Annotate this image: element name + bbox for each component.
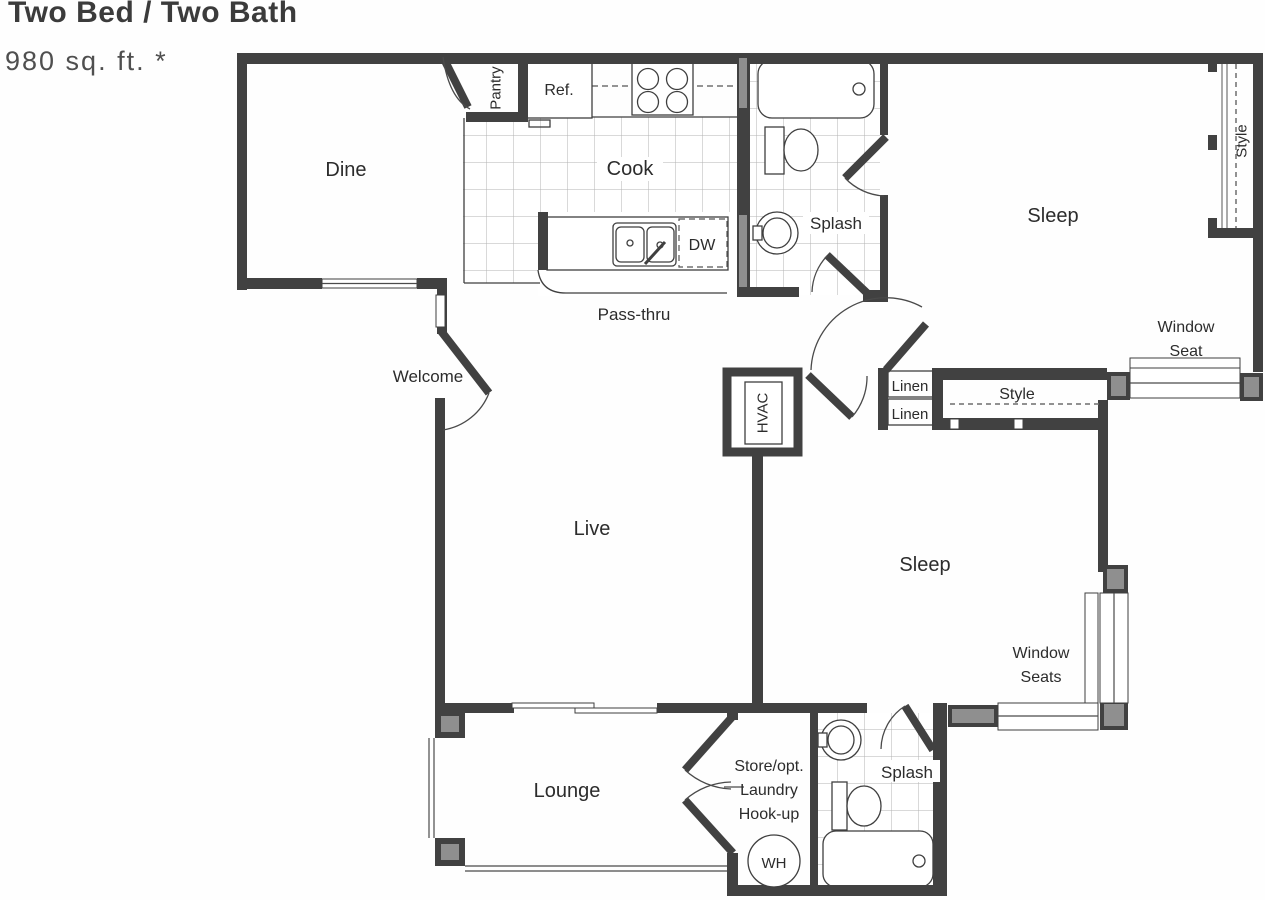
post-fill <box>1107 569 1124 589</box>
toilet-tank <box>765 127 784 174</box>
window-seat-upper-label-l1: Window <box>1158 319 1215 336</box>
wall-pantry-east <box>518 53 528 122</box>
bathtub <box>758 60 874 118</box>
wall-store-west-lower <box>727 853 738 891</box>
wall-dine-south-a <box>237 278 322 289</box>
wall-linen-west <box>878 368 888 430</box>
entry-label-welcome: Welcome <box>393 367 464 386</box>
wall-bath-lower-west <box>810 703 818 896</box>
laundry-label-l1: Store/opt. <box>734 758 803 775</box>
wall-live-west <box>435 398 445 710</box>
window-seats-lower-label-l1: Window <box>1013 645 1070 662</box>
wall-closet-bedroom-seg <box>1208 53 1217 72</box>
sleep-upper-door-leaf <box>886 324 926 370</box>
hvac-label: HVAC <box>755 393 772 434</box>
wall-bath-lower-north <box>818 703 867 713</box>
closet-hall-label: Style <box>999 386 1035 403</box>
entry-window <box>436 295 445 327</box>
sleep-lower-door-arc <box>852 376 867 417</box>
wall-bath-sleep-b <box>880 195 888 302</box>
room-label-dine: Dine <box>325 159 366 181</box>
wall-live-sleep-divider <box>752 455 763 707</box>
room-label-live: Live <box>574 518 611 540</box>
lounge-door-leaf-lower <box>685 800 733 853</box>
post-fill <box>441 716 459 732</box>
sink-tap-icon <box>753 226 762 240</box>
sleep-lower-door-leaf <box>808 375 852 417</box>
room-label-sleep-upper: Sleep <box>1027 205 1078 227</box>
linen-lower-label: Linen <box>892 406 929 423</box>
room-label-sleep-lower: Sleep <box>899 554 950 576</box>
plumbing-wall-fill <box>739 215 747 287</box>
toilet-bowl <box>784 129 818 171</box>
sleep-upper-door-arc <box>811 298 922 370</box>
pantry-label: Pantry <box>488 66 505 110</box>
patio-slider-a <box>512 703 594 708</box>
window-seat-upper-label-l2: Seat <box>1170 343 1203 360</box>
wall-sleep-lower-south <box>763 703 818 713</box>
dishwasher-label: DW <box>689 237 717 254</box>
window-block-fill <box>952 709 994 723</box>
room-label-lounge: Lounge <box>534 780 601 802</box>
wall-dine-west <box>237 53 247 290</box>
lounge-door-leaf-upper <box>685 716 733 770</box>
post-fill <box>1111 376 1126 396</box>
sink-tap-icon <box>818 733 827 747</box>
wall-sleep-lower-east <box>1098 400 1108 572</box>
laundry-label-l3: Hook-up <box>739 806 800 823</box>
closet-bedroom-label: Style <box>1234 124 1251 157</box>
fridge-label: Ref. <box>544 82 573 99</box>
patio-slider-b <box>575 708 657 713</box>
room-label-splash-lower: Splash <box>881 763 933 782</box>
wall-closet-bedroom-seg <box>1208 135 1217 150</box>
wall-closet-bedroom-south <box>1208 228 1263 238</box>
laundry-label-l2: Laundry <box>740 782 798 799</box>
door-pivot-mark <box>1014 419 1023 429</box>
wall-bath-lower-east <box>933 703 947 896</box>
entry-door-arc <box>443 393 489 430</box>
wall-closet-hall-north <box>932 368 1107 380</box>
toilet-bowl <box>847 786 881 826</box>
room-label-cook: Cook <box>607 158 655 180</box>
window-seats-lower-label-l2: Seats <box>1021 669 1062 686</box>
plumbing-wall-fill <box>739 58 747 108</box>
toilet-tank <box>832 782 847 830</box>
post-fill <box>441 844 459 860</box>
wall-bath-upper-south <box>737 287 799 297</box>
wall-lounge-north-b <box>657 703 763 713</box>
wall-peninsula-stub <box>538 212 548 270</box>
wall-bath-sleep-a <box>880 53 888 135</box>
door-pivot-mark <box>950 419 959 429</box>
floorplan-page: Two Bed / Two Bath 980 sq. ft. * <box>0 0 1265 900</box>
post-fill <box>1244 377 1259 397</box>
pass-thru-label: Pass-thru <box>598 305 671 324</box>
post-fill <box>1104 704 1124 726</box>
floorplan-drawing: Dine Cook Live Sleep Sleep Lounge Splash… <box>0 0 1265 900</box>
bathtub <box>823 831 933 887</box>
window-seat-lower-bench <box>1085 593 1098 703</box>
wall-bottom <box>727 885 947 896</box>
wall-east <box>1253 53 1263 372</box>
linen-upper-label: Linen <box>892 378 929 395</box>
water-heater-label: WH <box>762 855 787 872</box>
pantry-door-leaf <box>443 57 468 107</box>
room-label-splash-upper: Splash <box>810 214 862 233</box>
